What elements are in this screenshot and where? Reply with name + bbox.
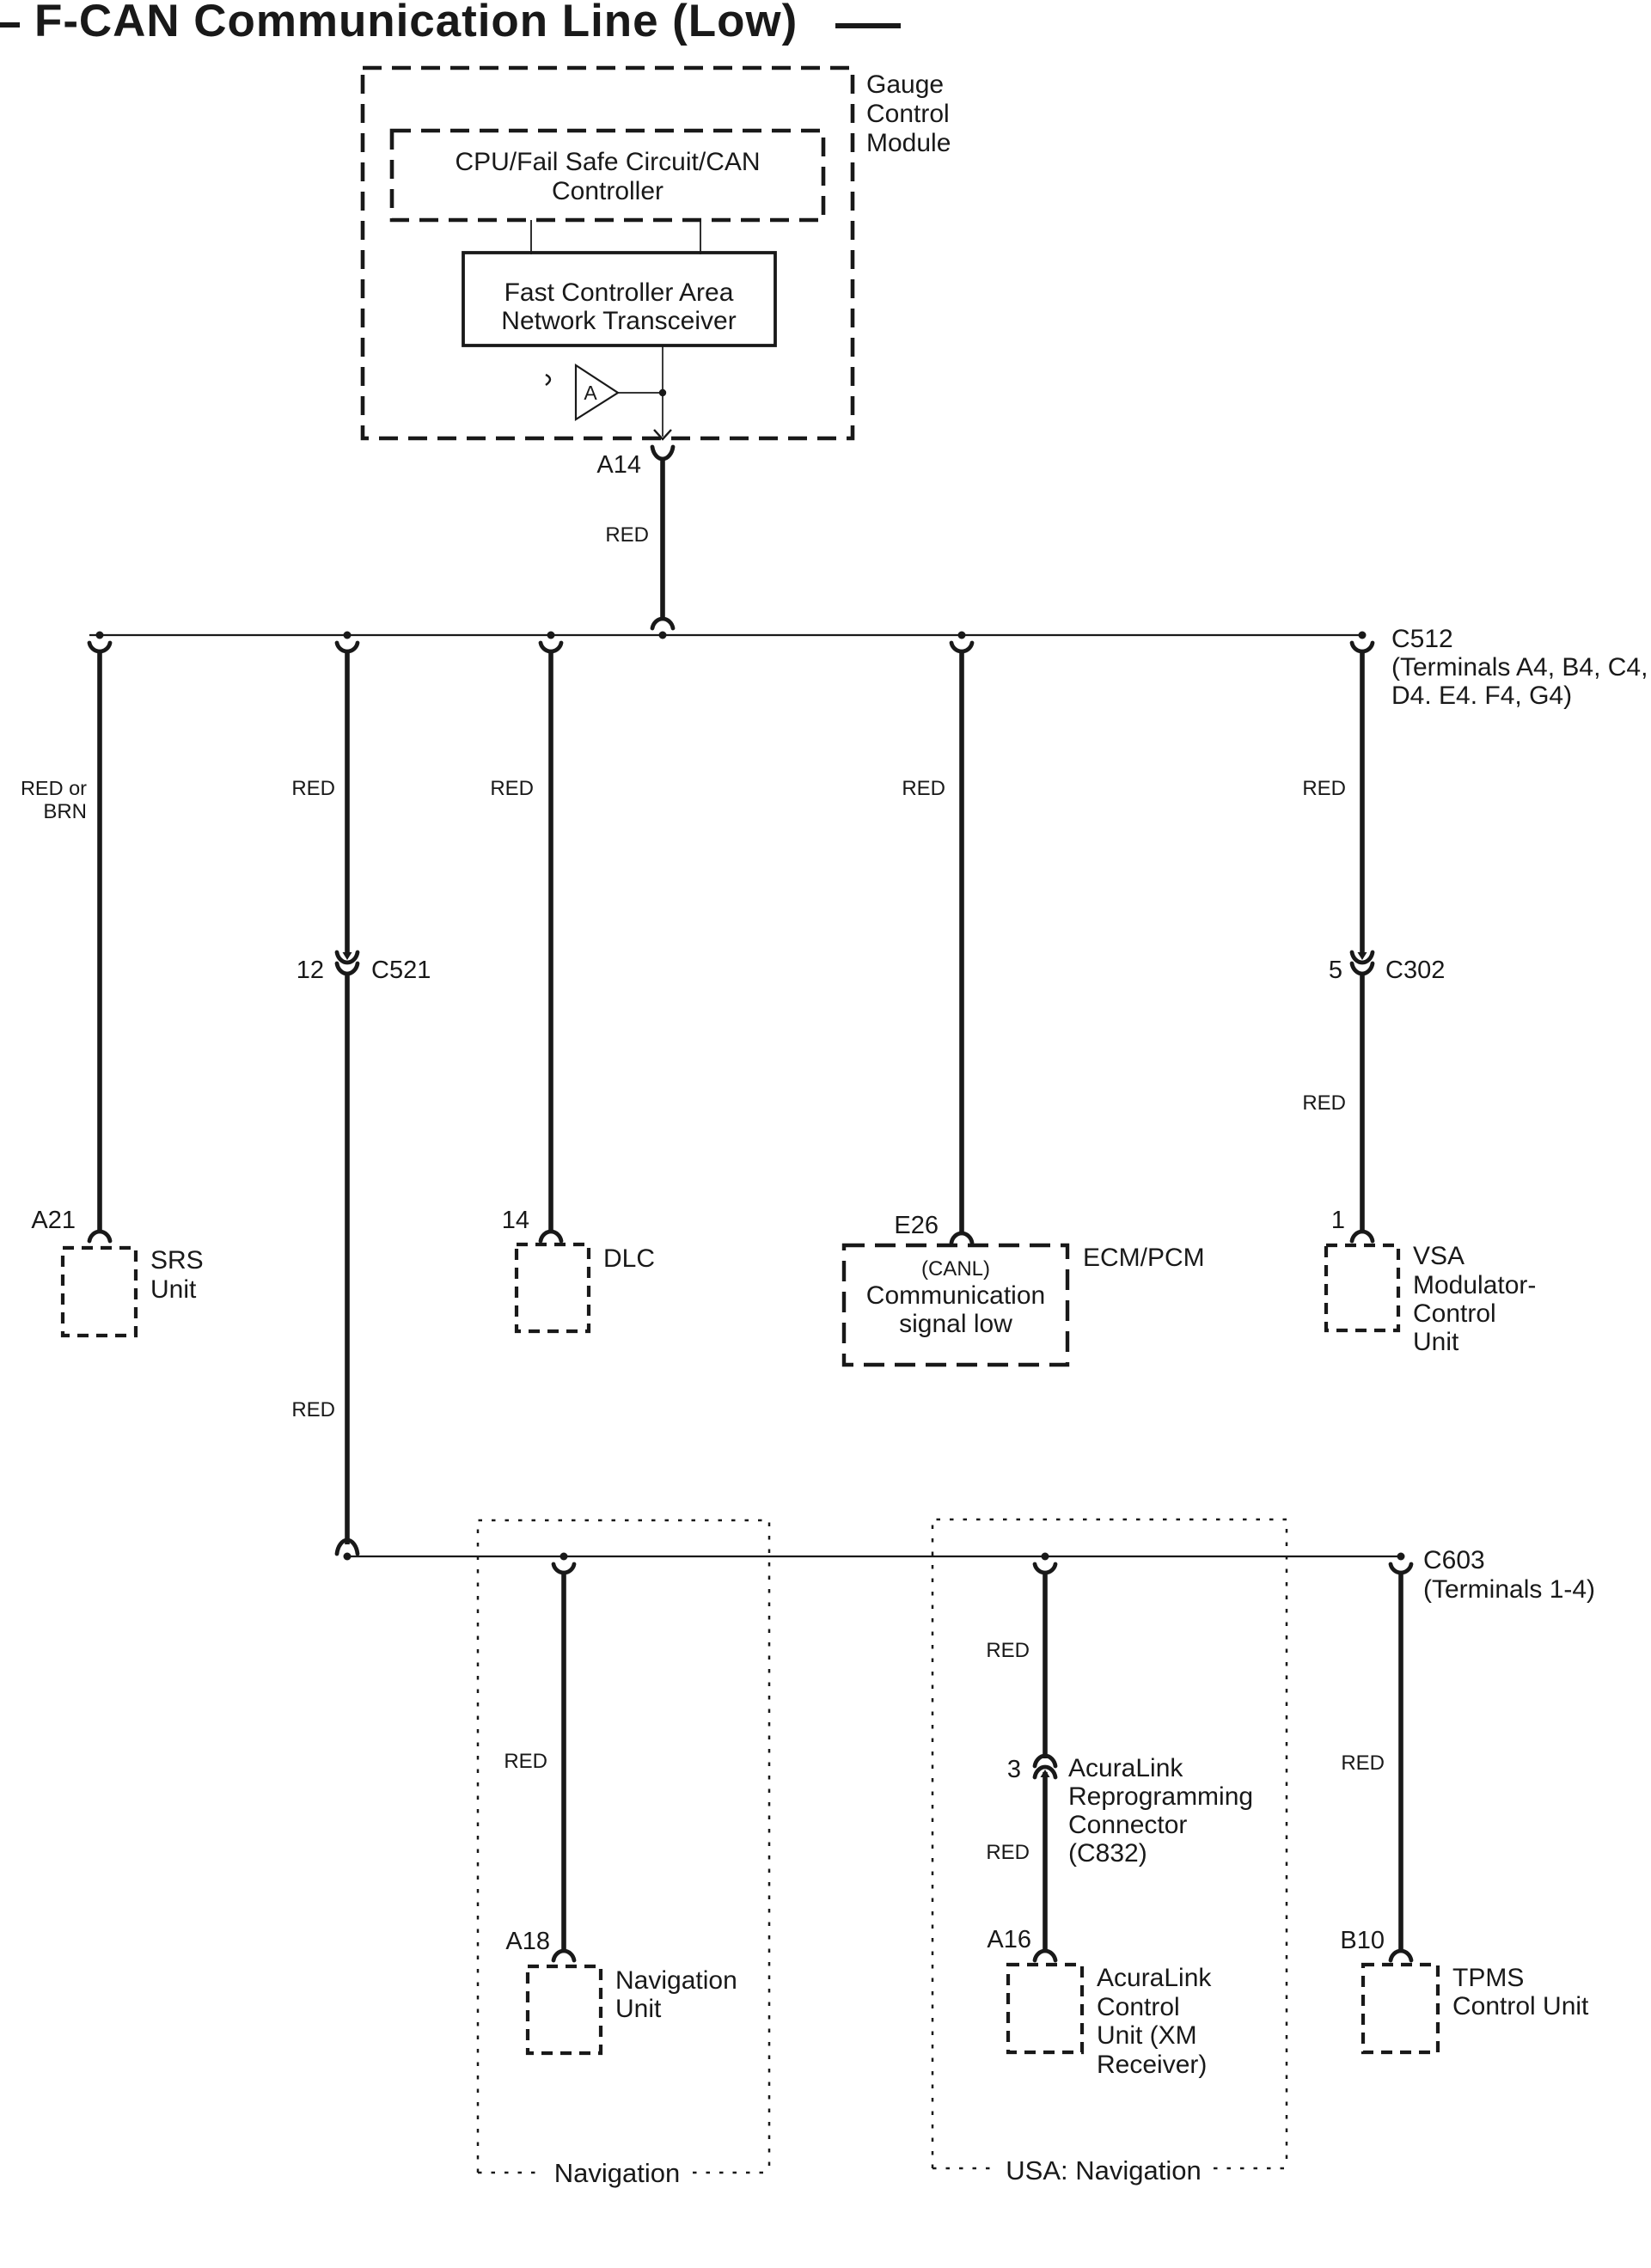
svg-text:12: 12 (297, 957, 324, 984)
svg-text:Module: Module (866, 129, 951, 157)
svg-text:BRN: BRN (43, 800, 87, 823)
svg-text:Reprogramming: Reprogramming (1068, 1782, 1253, 1811)
svg-text:Unit: Unit (615, 1995, 662, 2023)
svg-text:RED: RED (291, 777, 335, 800)
svg-text:Network Transceiver: Network Transceiver (501, 307, 736, 335)
svg-text:TPMS: TPMS (1452, 1964, 1524, 1992)
svg-text:RED: RED (605, 523, 649, 547)
svg-text:CPU/Fail Safe Circuit/CAN: CPU/Fail Safe Circuit/CAN (455, 148, 760, 176)
svg-text:D4. E4. F4, G4): D4. E4. F4, G4) (1391, 682, 1572, 710)
svg-text:(Terminals A4, B4, C4,: (Terminals A4, B4, C4, (1391, 653, 1648, 682)
svg-text:AcuraLink: AcuraLink (1097, 1964, 1212, 1992)
svg-text:ECM/PCM: ECM/PCM (1083, 1244, 1205, 1272)
svg-text:USA: Navigation: USA: Navigation (1006, 2155, 1201, 2185)
svg-text:Gauge: Gauge (866, 70, 944, 99)
svg-text:SRS: SRS (150, 1246, 204, 1275)
svg-text:RED: RED (291, 1398, 335, 1421)
svg-text:DLC: DLC (603, 1244, 655, 1273)
svg-text:A16: A16 (987, 1926, 1031, 1953)
svg-text:(Terminals 1-4): (Terminals 1-4) (1423, 1575, 1595, 1604)
svg-text:RED: RED (504, 1750, 547, 1773)
svg-text:RED: RED (986, 1841, 1030, 1864)
svg-text:Control Unit: Control Unit (1452, 1992, 1589, 2020)
svg-text:(CANL): (CANL) (921, 1257, 990, 1281)
svg-text:RED: RED (490, 777, 534, 800)
svg-text:Unit (XM: Unit (XM (1097, 2021, 1197, 2050)
svg-text:VSA: VSA (1413, 1242, 1464, 1270)
svg-text:A21: A21 (31, 1207, 76, 1234)
svg-text:Control: Control (1413, 1299, 1496, 1328)
svg-text:Modulator-: Modulator- (1413, 1271, 1536, 1299)
svg-text:Connector: Connector (1068, 1811, 1187, 1839)
svg-text:1: 1 (1331, 1207, 1345, 1234)
svg-text:RED: RED (1302, 1091, 1346, 1115)
svg-text:(C832): (C832) (1068, 1839, 1147, 1868)
svg-text:C603: C603 (1423, 1546, 1485, 1574)
svg-text:Receiver): Receiver) (1097, 2051, 1207, 2079)
svg-text:A: A (584, 382, 597, 404)
svg-text:signal low: signal low (899, 1310, 1012, 1338)
svg-text:Communication: Communication (866, 1281, 1045, 1310)
svg-text:C521: C521 (371, 957, 431, 984)
svg-text:E26: E26 (894, 1212, 939, 1239)
svg-text:5: 5 (1329, 957, 1342, 984)
svg-text:RED: RED (902, 777, 945, 800)
svg-text:RED: RED (1302, 777, 1346, 800)
svg-text:C512: C512 (1391, 625, 1453, 653)
svg-text:Navigation: Navigation (615, 1966, 737, 1995)
svg-text:Fast Controller Area: Fast Controller Area (504, 278, 734, 307)
svg-text:Navigation: Navigation (554, 2158, 680, 2188)
svg-text:Controller: Controller (552, 177, 663, 205)
svg-text:A14: A14 (596, 451, 641, 479)
svg-text:Unit: Unit (1413, 1328, 1459, 1356)
svg-text:A18: A18 (505, 1928, 550, 1955)
svg-text:Unit: Unit (150, 1275, 197, 1304)
svg-text:AcuraLink: AcuraLink (1068, 1754, 1183, 1782)
svg-text:C302: C302 (1385, 957, 1445, 984)
svg-text:RED: RED (986, 1639, 1030, 1662)
svg-text:RED or: RED or (21, 777, 87, 799)
svg-text:RED: RED (1341, 1751, 1385, 1775)
svg-text:Control: Control (1097, 1993, 1180, 2021)
svg-text:Control: Control (866, 100, 950, 128)
svg-text:F-CAN Communication Line (Low): F-CAN Communication Line (Low) (34, 0, 798, 46)
svg-text:B10: B10 (1340, 1927, 1385, 1954)
svg-text:14: 14 (502, 1207, 529, 1234)
svg-text:3: 3 (1007, 1756, 1021, 1783)
